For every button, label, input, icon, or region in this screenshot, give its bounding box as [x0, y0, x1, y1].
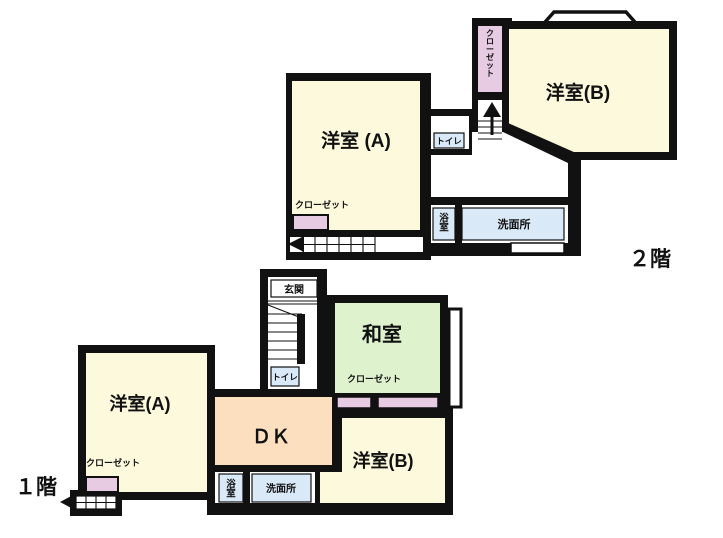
- f2-bath-divider-wall: [455, 205, 462, 245]
- f2-label-closet-a: クローゼット: [295, 199, 349, 210]
- f1-closet-room-a: [86, 477, 118, 492]
- f2-label-bath: 浴室: [439, 212, 449, 234]
- f2-label-toilet: トイレ: [436, 136, 462, 146]
- f1-stair-rail-wall: [297, 314, 305, 364]
- f1-floor-label: １階: [15, 476, 57, 499]
- f2-floor-label: ２階: [629, 248, 671, 271]
- f1-left-arrow-icon: [60, 494, 75, 510]
- f1-label-closet-washitsu: クローゼット: [347, 373, 401, 384]
- f1-washitsu-closet-left: [337, 397, 371, 408]
- f2-label-yoshitsu-a: 洋室 (A): [321, 129, 391, 152]
- f1-label-dk: ＤＫ: [252, 427, 290, 448]
- f2-label-closet-column: クローゼット: [486, 28, 494, 78]
- f1-label-genkan: 玄関: [284, 283, 304, 296]
- floor1-plan: 玄関 トイレ 和室 クローゼット 洋室(A) クローゼット ＤＫ 洋室(B) 浴…: [15, 269, 461, 516]
- f1-label-washitsu: 和室: [362, 322, 402, 346]
- f1-washitsu-side-window: [449, 309, 461, 407]
- f1-bath-divider-wall: [243, 472, 250, 503]
- f1-label-closet-a: クローゼット: [86, 457, 140, 468]
- f2-label-washroom: 洗面所: [498, 217, 531, 231]
- f2-washroom-window: [511, 243, 564, 253]
- f1-washitsu-closet-right: [378, 397, 438, 408]
- floorplan-svg: 洋室 (A) 洋室(B) クローゼット トイレ クローゼット 浴室 洗面所 ２階: [0, 0, 723, 538]
- f1-label-yoshitsu-b: 洋室(B): [353, 450, 414, 471]
- f1-label-toilet: トイレ: [272, 372, 298, 382]
- f1-room-yoshitsu-a: [86, 353, 207, 492]
- f1-label-washroom: 洗面所: [266, 482, 296, 495]
- f1-label-yoshitsu-a: 洋室(A): [110, 393, 171, 414]
- floor2-plan: 洋室 (A) 洋室(B) クローゼット トイレ クローゼット 浴室 洗面所 ２階: [286, 12, 673, 271]
- floorplan-canvas: 洋室 (A) 洋室(B) クローゼット トイレ クローゼット 浴室 洗面所 ２階: [0, 0, 723, 538]
- f2-label-yoshitsu-b: 洋室(B): [546, 81, 610, 104]
- f1-label-bath: 浴室: [226, 478, 236, 500]
- f2-closet-room-a: [293, 215, 328, 230]
- f2-stair-arrow-stem: [491, 117, 494, 135]
